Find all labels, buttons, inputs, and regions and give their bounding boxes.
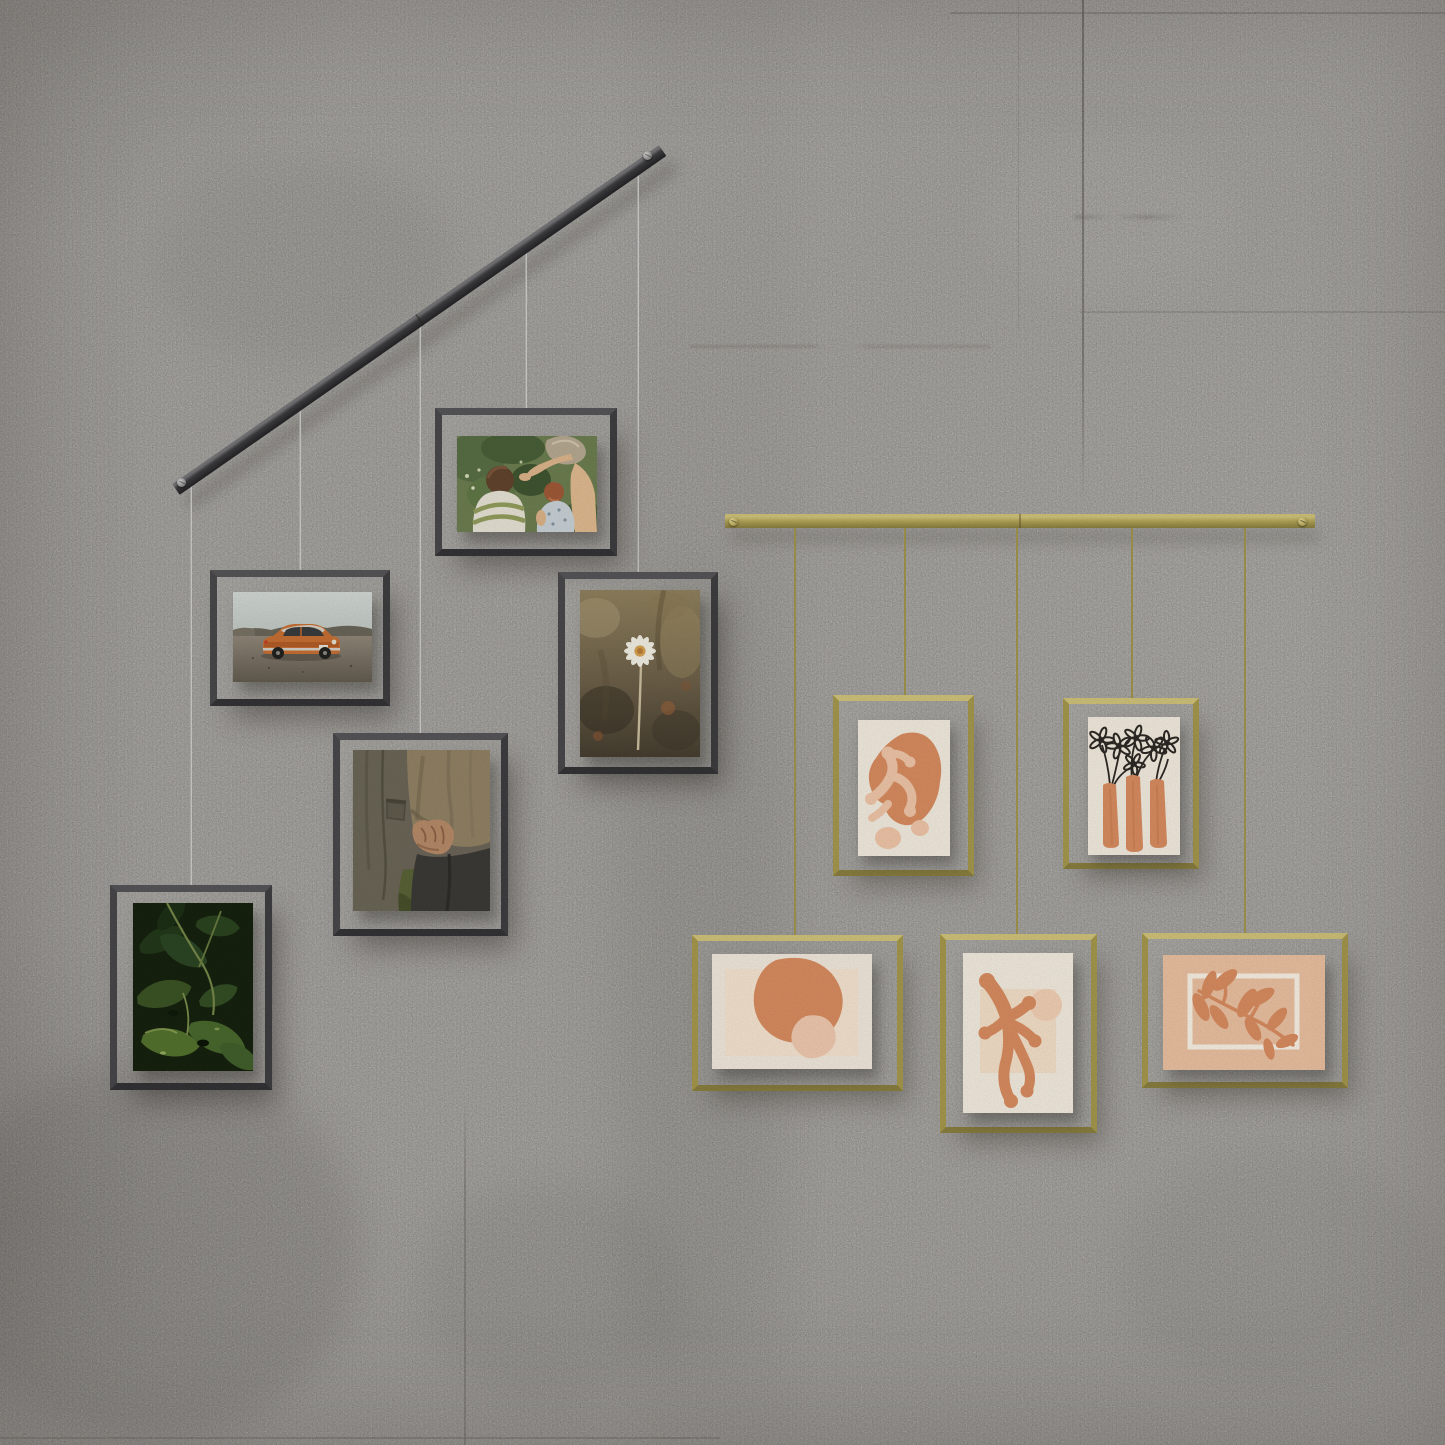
frame-white-daisy [558, 572, 718, 774]
mounting-screw-icon [729, 517, 738, 526]
hanging-wire [190, 478, 192, 886]
hanging-wire [299, 402, 301, 571]
concrete-grain-texture [0, 0, 1445, 1445]
frame-kids-garden [435, 408, 617, 556]
wall-stain [420, 1180, 680, 1400]
mounting-screw-icon [1298, 517, 1307, 526]
rail-joint-seam [415, 314, 424, 326]
mounting-screw-icon [177, 478, 186, 487]
wall-seam-horizontal [1080, 311, 1445, 313]
wall-seam-horizontal [0, 1437, 720, 1439]
hanging-wire [1131, 527, 1133, 699]
wall-stain [980, 140, 1240, 300]
hanging-wire [794, 527, 796, 936]
photo-kids-garden [457, 436, 597, 532]
concrete-wall-scene [0, 0, 1445, 1445]
wall-seam-horizontal [950, 12, 1445, 14]
mounting-screw-icon [643, 151, 652, 160]
frame-flower-vases [1063, 698, 1199, 869]
hanging-wire [1244, 527, 1246, 934]
wall-seam-vertical [1082, 0, 1084, 512]
frame-terracotta-egg [692, 935, 903, 1091]
wall-smudge [690, 345, 990, 348]
wall-smudge [1075, 215, 1205, 219]
photo-orange-car [233, 592, 372, 682]
brass-display-rail [725, 514, 1315, 528]
hanging-wire [904, 527, 906, 696]
hanging-wire [525, 244, 527, 409]
art-leaf-outline [1163, 955, 1325, 1070]
frame-leaf-outline [1142, 933, 1348, 1088]
hanging-wire [419, 318, 421, 734]
photo-green-leaves [133, 903, 253, 1071]
wall-shading [0, 0, 1445, 1445]
art-coral-cutout [858, 720, 950, 856]
frame-green-leaves [110, 885, 272, 1090]
wall-stain [1120, 1150, 1440, 1390]
rail-joint-seam [1019, 514, 1021, 528]
frame-orange-car [210, 570, 390, 706]
photo-grain-overlay [0, 0, 1445, 1445]
frame-holding-hands [333, 733, 508, 936]
art-coral-branch [963, 953, 1073, 1113]
hanging-wire [1016, 527, 1018, 935]
wall-seam-vertical [464, 1098, 466, 1445]
frame-coral-branch [940, 934, 1097, 1133]
photo-white-daisy [580, 590, 700, 757]
wall-stain [0, 1060, 360, 1440]
vignette-overlay [0, 0, 1445, 1445]
photo-holding-hands [353, 750, 490, 911]
wall-seam-vertical [1018, 0, 1019, 330]
art-flower-vases [1088, 717, 1180, 855]
frame-coral-cutout [833, 695, 974, 876]
brass-rail-shadow [731, 532, 1319, 541]
hanging-wire [637, 167, 639, 573]
wall-streak-texture [0, 0, 1445, 1445]
art-terracotta-egg [712, 954, 872, 1069]
